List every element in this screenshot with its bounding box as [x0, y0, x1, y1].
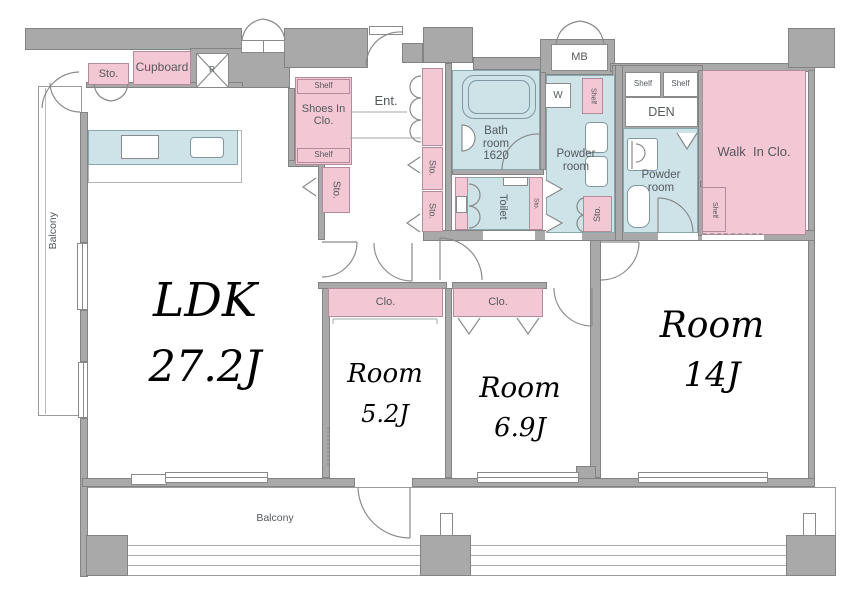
storage-powder1-label: Sto.: [592, 206, 602, 222]
window-room69-line: [478, 477, 578, 478]
wall-right: [808, 70, 815, 485]
refrigerator-label: R: [209, 66, 215, 75]
storage-ent-2-label: Sto.: [427, 203, 437, 219]
den-box: DEN: [625, 97, 698, 127]
kitchen-sink: [190, 137, 224, 158]
bath-label-line2: room: [483, 138, 509, 151]
entrance-door-arc-left: [242, 19, 263, 40]
wall-room69-room14: [590, 237, 601, 478]
meter-box: MB: [551, 44, 608, 71]
room69-name-text: Room: [479, 372, 560, 403]
ent-bifold-3: [410, 120, 421, 142]
room52-size: 5.2J: [335, 398, 435, 430]
room52-name: Room: [335, 358, 435, 392]
shoes-shelf-bottom-label: Shelf: [314, 151, 332, 160]
bath-room-label: Bath room 1620: [466, 122, 526, 166]
hall-door-arc: [374, 243, 412, 281]
ent-bifold-1: [410, 76, 421, 98]
window-left-upper-line: [82, 244, 83, 309]
wall-entry-right: [402, 43, 423, 63]
wall-block-ent: [423, 27, 473, 63]
powder1-line2: room: [563, 161, 589, 174]
den-shelf-1-label: Shelf: [634, 80, 652, 89]
meter-box-label: MB: [571, 51, 588, 63]
closet-room69: Clo.: [453, 288, 543, 317]
room69-name: Room: [465, 370, 575, 406]
room52-size-text: 5.2J: [361, 401, 409, 428]
den-shelf-1: Shelf: [625, 72, 661, 97]
den-label: DEN: [648, 105, 674, 119]
ldk-size: 27.2J: [135, 340, 275, 394]
room14-size: 14J: [652, 354, 772, 396]
walk-in-closet-label: Walk In Clo.: [704, 143, 804, 161]
room14-door-arc: [601, 242, 639, 280]
entrance-label-text: Ent.: [374, 94, 397, 109]
powder1-line1: Powder: [557, 148, 596, 161]
left-balcony-label-text: Balcony: [48, 212, 60, 249]
ent-door-leaf: [369, 26, 403, 35]
room69-size-text: 6.9J: [494, 414, 546, 443]
shoes-closet-label: Shoes In Clo.: [295, 100, 352, 130]
ldk-door-arc: [322, 242, 357, 277]
storage-top-left-label: Sto.: [99, 68, 119, 80]
entrance-door-arc-right: [263, 19, 285, 40]
gap-balcony-door: [356, 478, 411, 487]
ldk-size-text: 27.2J: [149, 343, 262, 391]
storage-toilet: Sto.: [529, 177, 543, 230]
wall-room52-room69: [445, 288, 452, 478]
room14-name: Room: [652, 304, 772, 348]
toilet-window: [456, 196, 467, 213]
ent-door-arc: [366, 32, 402, 66]
room52-name-text: Room: [347, 360, 423, 389]
window-room14-line: [639, 477, 767, 478]
shelf-powder1: Shelf: [582, 78, 603, 114]
ent-sto-chevron-1: [408, 157, 420, 173]
walk-in-closet-label-text: Walk In Clo.: [717, 145, 790, 160]
room69-door-arc: [554, 288, 592, 326]
wall-block-entry-left: [284, 28, 368, 68]
window-left-lower-line: [83, 363, 84, 417]
cupboard-label: Cupboard: [136, 61, 189, 74]
shoes-closet-line2: Clo.: [314, 115, 334, 127]
washer-box: W: [545, 83, 571, 108]
wall-bath-left: [445, 63, 452, 237]
storage-ent-1: Sto.: [422, 147, 443, 190]
wall-corner-top-right: [788, 28, 835, 68]
window-ldk-small: [131, 474, 167, 485]
bath-label-line3: 1620: [483, 150, 509, 163]
pillar-right: [786, 535, 836, 576]
storage-ent-1-label: Sto.: [427, 160, 437, 176]
ent-bifold-2: [410, 98, 421, 120]
storage-powder1: Sto.: [583, 196, 612, 232]
den-shelf-2-label: Shelf: [671, 80, 689, 89]
room14-size-text: 14J: [684, 356, 741, 394]
left-balcony-label: Balcony: [46, 200, 62, 262]
room69-size: 6.9J: [465, 412, 575, 446]
bathtub-inner: [468, 80, 530, 114]
shelf-powder1-label: Shelf: [589, 88, 597, 104]
storage-shoes: Sto.: [322, 167, 350, 213]
refrigerator-label-wrap: R: [203, 63, 221, 77]
washer-label: W: [553, 90, 562, 101]
toilet-label-text: Toilet: [497, 194, 509, 220]
ent-sto-chevron-2: [407, 214, 420, 232]
storage-shoes-label: Sto.: [330, 181, 341, 199]
closet52-track: [333, 319, 437, 324]
room14-name-text: Room: [660, 306, 765, 346]
ldk-name-text: LDK: [153, 275, 257, 328]
wall-left-1: [80, 112, 88, 243]
powder-room-2-label: Powder room: [629, 168, 693, 196]
shelf-wic-label: Shelf: [710, 202, 718, 218]
entrance-label: Ent.: [366, 93, 406, 109]
pillar-right-vent: [803, 513, 816, 536]
shelf-wic: Shelf: [702, 187, 726, 232]
powder2-line1: Powder: [642, 169, 681, 182]
toilet-label: Toilet: [495, 185, 511, 229]
window-ldk-large-line: [166, 477, 267, 478]
shoes-sto-chevron: [303, 178, 316, 196]
entrance-strip: [422, 68, 443, 146]
closet-room52: Clo.: [328, 288, 443, 317]
cupboard: Cupboard: [133, 51, 191, 85]
bottom-balcony-label-text: Balcony: [256, 513, 293, 525]
bottom-balcony-label: Balcony: [240, 512, 310, 526]
floor-plan: Sto. Cupboard Shelf Shelf Sto. Sto. Sto.…: [0, 0, 865, 598]
powder2-washbasin: [627, 138, 658, 171]
bath-label-line1: Bath: [484, 125, 508, 138]
powder-room-1-label: Powder room: [544, 147, 608, 175]
closet69-chevron-2: [517, 318, 539, 334]
pillar-middle-vent: [440, 513, 453, 536]
closet-room52-label: Clo.: [376, 296, 396, 308]
entrance-door-frame-divider: [263, 41, 264, 52]
storage-top-left: Sto.: [88, 63, 129, 85]
den-shelf-2: Shelf: [663, 72, 698, 97]
ldk-name: LDK: [140, 272, 270, 330]
shoes-closet-line1: Shoes In: [302, 103, 345, 115]
storage-toilet-label: Sto.: [532, 198, 539, 210]
closet69-chevron-1: [458, 318, 480, 334]
wall-bath-top: [473, 57, 547, 70]
pillar-left: [86, 535, 128, 576]
powder2-line2: room: [648, 182, 674, 195]
shoes-shelf-top-label: Shelf: [314, 82, 332, 91]
wall-ldk-shoes: [288, 88, 295, 164]
stove: [121, 135, 159, 159]
storage-ent-2: Sto.: [422, 191, 443, 232]
wall-room69-notch: [576, 466, 596, 479]
gap-toilet-entry: [483, 231, 535, 240]
wall-top-band: [25, 28, 242, 50]
pillar-middle: [420, 535, 471, 576]
wall-left-2: [80, 310, 88, 362]
shoes-closet-shelf-top: Shelf: [297, 79, 350, 94]
wall-powder1-powder2: [615, 65, 623, 241]
corridor-door-arc: [440, 238, 482, 280]
closet-room69-label: Clo.: [488, 296, 508, 308]
shoes-closet-shelf-bottom: Shelf: [297, 148, 350, 163]
